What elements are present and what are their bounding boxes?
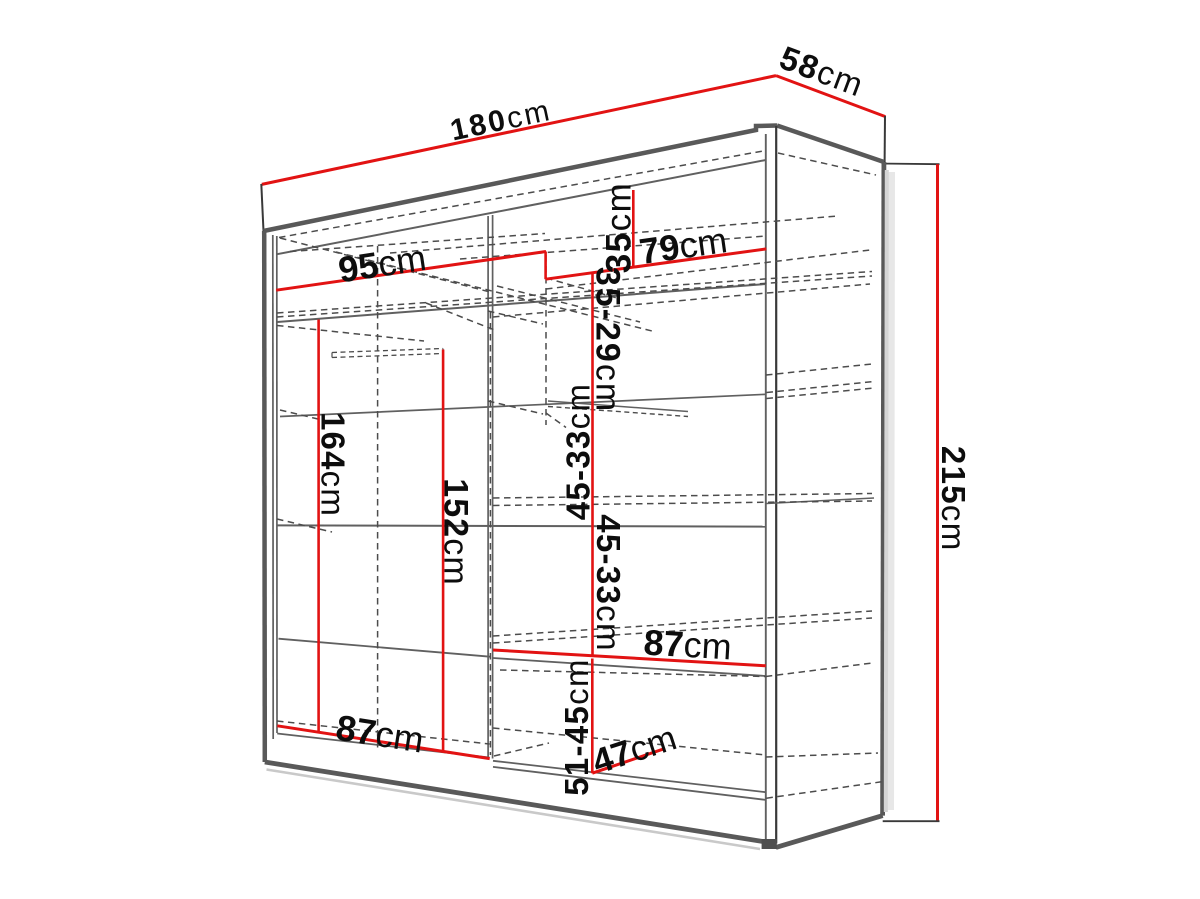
svg-text:87cm: 87cm	[643, 622, 733, 668]
svg-text:164cm: 164cm	[315, 412, 352, 517]
svg-text:215cm: 215cm	[935, 446, 972, 552]
svg-text:152cm: 152cm	[436, 478, 474, 586]
svg-text:45-33cm: 45-33cm	[559, 383, 596, 521]
svg-text:35cm: 35cm	[599, 182, 638, 274]
svg-text:51-45cm: 51-45cm	[558, 658, 595, 796]
svg-text:45-33cm: 45-33cm	[590, 514, 627, 652]
